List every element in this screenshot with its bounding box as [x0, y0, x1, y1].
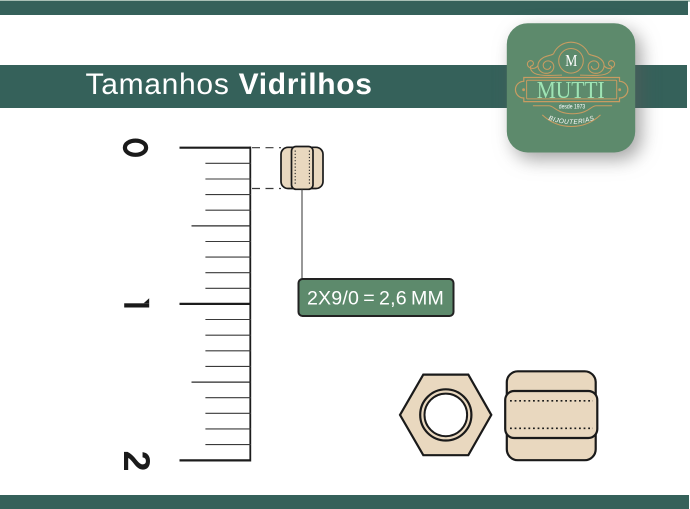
svg-text:MUTTI: MUTTI [537, 78, 605, 104]
svg-text:M: M [565, 52, 577, 71]
svg-text:desde 1973: desde 1973 [559, 104, 586, 111]
